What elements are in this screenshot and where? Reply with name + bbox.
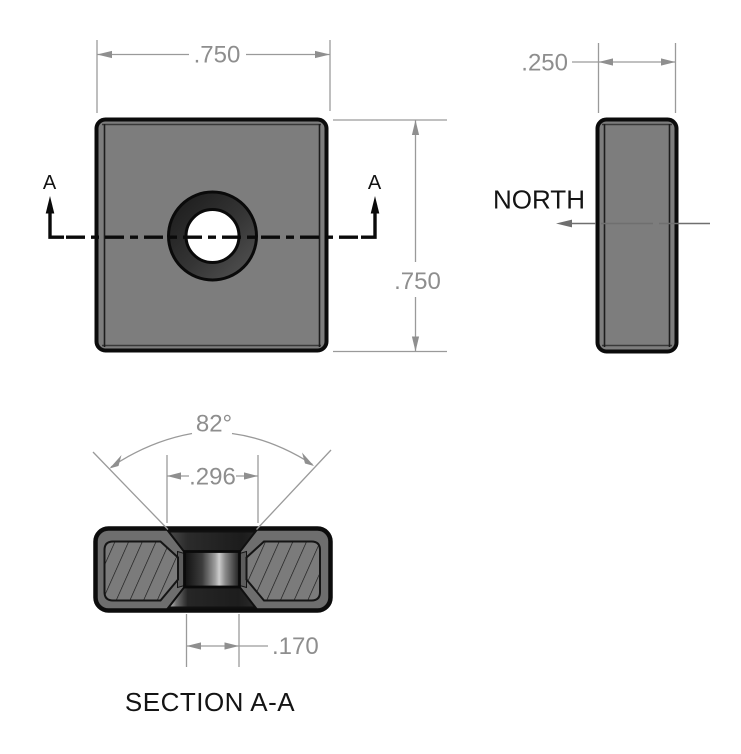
front-view <box>97 120 327 351</box>
dim-arrow-icon <box>225 642 240 649</box>
dim-arrow-icon <box>315 51 330 58</box>
side-thickness-value: .250 <box>521 50 568 77</box>
magnet-technical-drawing: A A .750 .750 NORTH <box>0 0 741 754</box>
dim-arrow-icon <box>97 51 112 58</box>
dim-side-thickness: .250 <box>521 43 675 113</box>
dim-arrow-icon <box>244 472 258 479</box>
dim-arrow-icon <box>599 58 614 65</box>
dim-arrow-icon <box>412 337 419 352</box>
hatch-lines-left <box>105 542 179 601</box>
dim-arrow-icon <box>661 58 676 65</box>
section-view <box>96 529 331 611</box>
north-direction-arrow-icon <box>556 220 572 228</box>
countersink-angle-value: 82° <box>196 411 232 438</box>
hole-dia-value: .170 <box>272 633 319 660</box>
angle-arc <box>111 434 192 468</box>
section-arrow-left-icon <box>46 196 55 214</box>
section-label-right: A <box>368 172 382 194</box>
dim-arrow-icon <box>167 472 181 479</box>
bore-wall <box>185 552 240 588</box>
cut-line-left-elbow <box>50 213 64 237</box>
drawing-canvas: A A .750 .750 NORTH <box>0 0 741 754</box>
section-label-left: A <box>43 172 57 194</box>
angle-leg-right <box>257 450 332 530</box>
side-body <box>598 120 677 352</box>
dim-front-width: .750 <box>97 40 330 113</box>
section-arrow-right-icon <box>371 196 380 214</box>
section-title: SECTION A-A <box>125 687 295 717</box>
cut-line-right-elbow <box>361 213 375 237</box>
front-height-value: .750 <box>394 268 441 295</box>
angle-arc <box>232 434 313 465</box>
countersink-dia-value: .296 <box>189 464 236 491</box>
dim-hole-dia: .170 <box>187 614 319 667</box>
side-view: NORTH <box>493 120 710 352</box>
hatch-lines-right <box>247 542 321 601</box>
north-label: NORTH <box>493 185 585 215</box>
dim-arrow-icon <box>187 642 202 649</box>
dim-countersink-dia: .296 <box>167 455 258 523</box>
dim-arrow-icon <box>412 120 419 135</box>
front-width-value: .750 <box>194 42 241 69</box>
angle-leg-left <box>93 452 168 530</box>
